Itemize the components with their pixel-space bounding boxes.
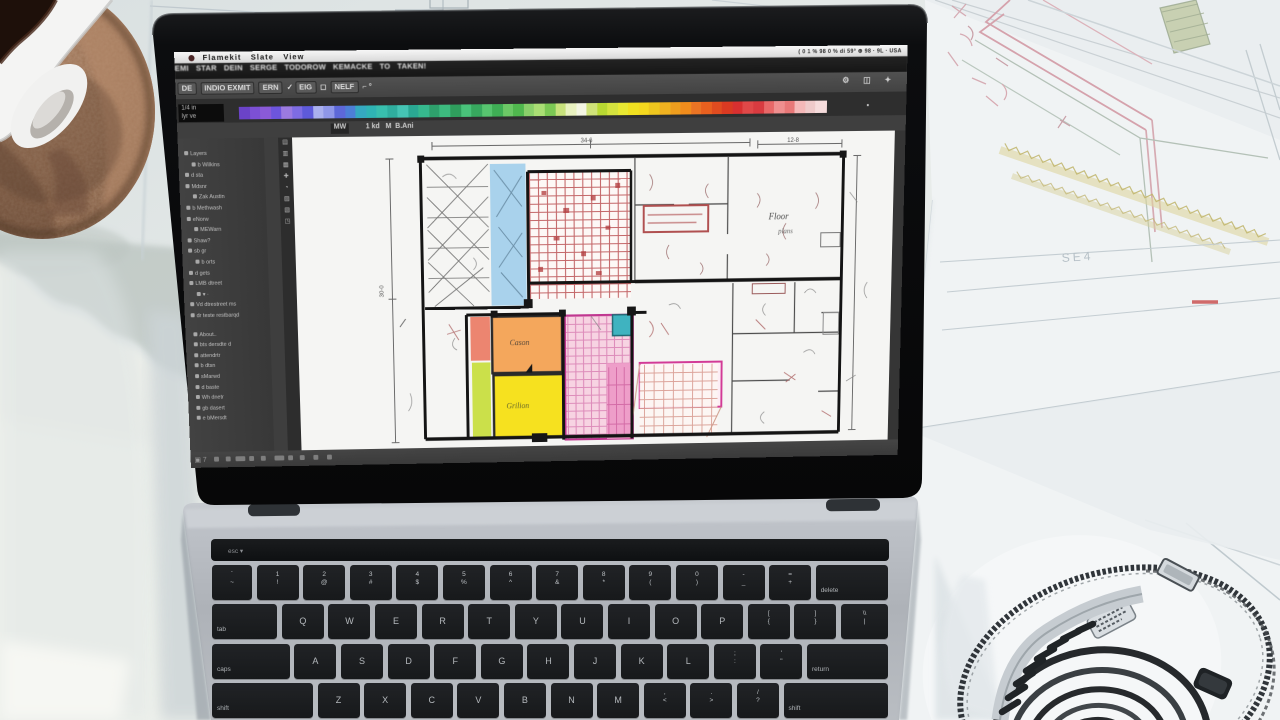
svg-text:34-6: 34-6 <box>581 137 593 144</box>
svg-text:Cason: Cason <box>510 338 530 347</box>
svg-text:Floor: Floor <box>768 212 789 222</box>
svg-text:Grilion: Grilion <box>506 401 529 410</box>
svg-text:SE4: SE4 <box>1061 249 1094 265</box>
svg-text:30-0: 30-0 <box>379 285 386 298</box>
svg-text:12-8: 12-8 <box>787 137 799 144</box>
svg-text:plans: plans <box>777 227 793 235</box>
